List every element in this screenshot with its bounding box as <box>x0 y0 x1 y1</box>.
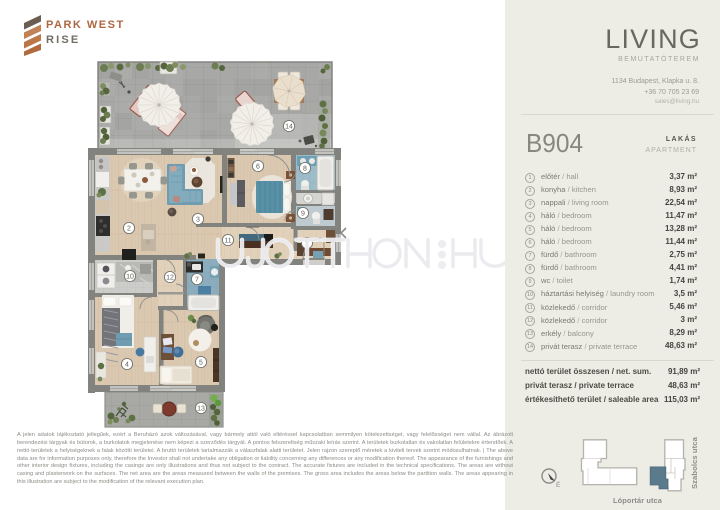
svg-text:Szabolcs utca: Szabolcs utca <box>690 436 699 489</box>
svg-text:9: 9 <box>301 210 305 217</box>
svg-text:11: 11 <box>224 237 231 244</box>
svg-text:13: 13 <box>197 405 205 412</box>
svg-text:2: 2 <box>127 225 131 232</box>
svg-text:14: 14 <box>285 123 293 130</box>
svg-text:12: 12 <box>166 274 174 281</box>
svg-text:Lóportár utca: Lóportár utca <box>613 496 663 505</box>
svg-text:3: 3 <box>196 216 200 223</box>
svg-text:5: 5 <box>199 359 203 366</box>
svg-text:É: É <box>556 480 561 489</box>
svg-text:8: 8 <box>303 165 307 172</box>
svg-text:7: 7 <box>195 276 199 283</box>
svg-text:10: 10 <box>126 273 134 280</box>
svg-text:6: 6 <box>256 163 260 170</box>
svg-text:4: 4 <box>125 361 129 368</box>
